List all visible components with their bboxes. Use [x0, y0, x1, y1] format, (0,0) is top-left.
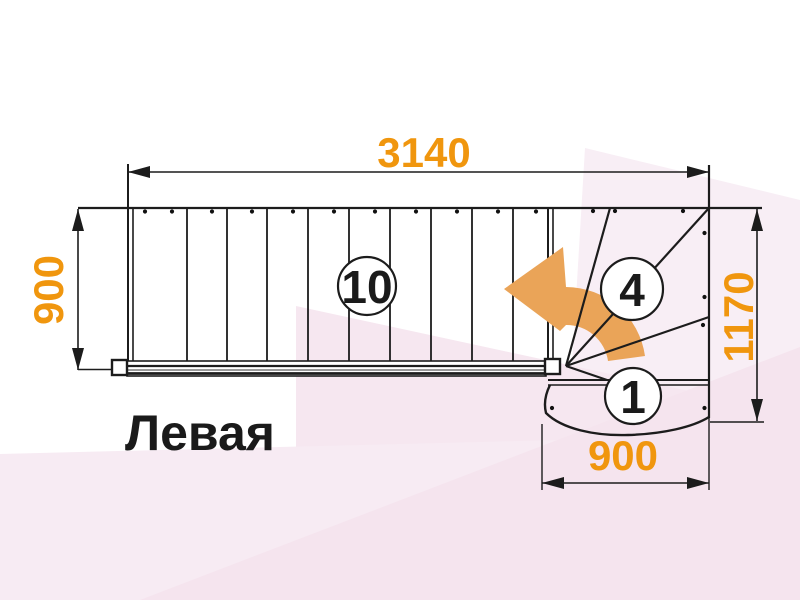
stringer-band — [127, 361, 546, 376]
dim-arrow-down — [72, 348, 84, 370]
stair-plan-svg: 3140 900 1170 900 10 4 1 Левая — [0, 0, 800, 600]
dimension-top-value: 3140 — [377, 129, 470, 176]
flight-dots — [143, 209, 538, 213]
dimension-left: 900 — [25, 209, 112, 370]
winder-steps-count: 4 — [619, 264, 645, 316]
stair-plan-drawing: 3140 900 1170 900 10 4 1 Левая — [0, 0, 800, 600]
dimension-left-value: 900 — [25, 255, 72, 325]
dimension-right-value: 1170 — [715, 271, 762, 362]
dim-arrow-left — [128, 166, 150, 178]
bottom-step-count: 1 — [620, 371, 646, 423]
dim-arrow-up — [72, 209, 84, 231]
newel-post-right — [545, 359, 560, 374]
flight-steps-count: 10 — [341, 261, 392, 313]
orientation-title: Левая — [125, 405, 275, 461]
dimension-bottom-value: 900 — [588, 432, 658, 479]
newel-post-left — [112, 360, 127, 375]
